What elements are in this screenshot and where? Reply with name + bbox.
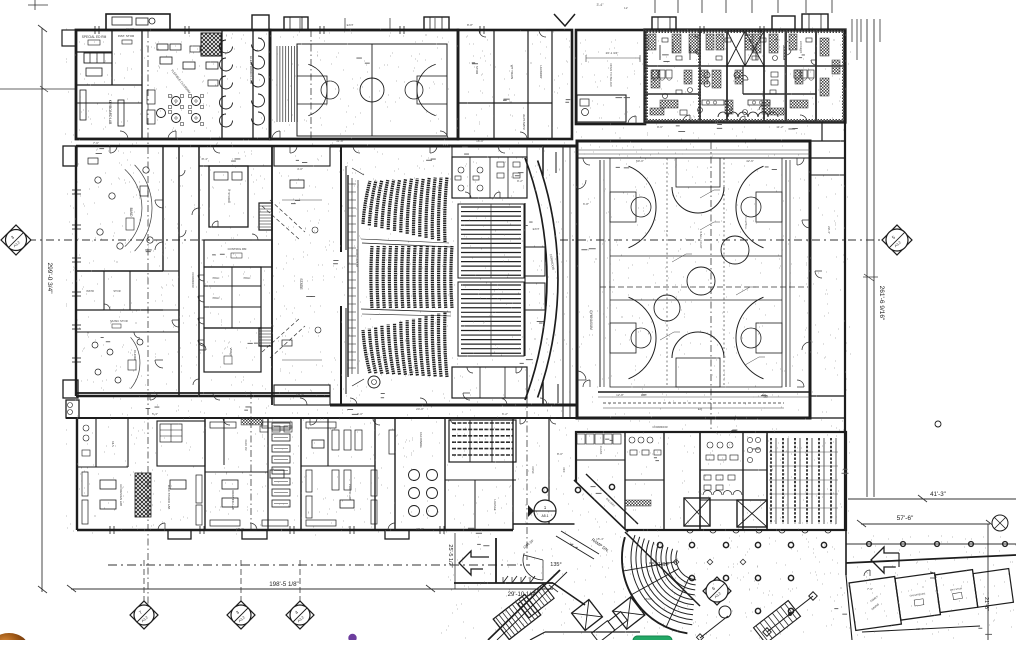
svg-text:9'-2": 9'-2" <box>517 179 523 183</box>
svg-text:16'-0": 16'-0" <box>476 139 484 143</box>
svg-text:11'-2": 11'-2" <box>776 125 783 129</box>
svg-text:12'-8": 12'-8" <box>616 393 624 397</box>
svg-text:25'-5 1/2": 25'-5 1/2" <box>447 544 453 567</box>
svg-text:299'-0 3/4": 299'-0 3/4" <box>46 262 53 294</box>
svg-text:29'-4": 29'-4" <box>827 226 831 234</box>
svg-text:LOUNGE: LOUNGE <box>493 500 497 511</box>
svg-text:7'-9": 7'-9" <box>867 587 873 591</box>
svg-text:8'-8": 8'-8" <box>467 23 473 27</box>
svg-text:8'-4": 8'-4" <box>202 157 208 161</box>
svg-text:OPEN TO BELOW: OPEN TO BELOW <box>609 63 613 87</box>
svg-text:CONF: CONF <box>531 466 535 474</box>
svg-text:ELECTRONICS LAB: ELECTRONICS LAB <box>249 56 253 84</box>
svg-text:12': 12' <box>624 6 628 10</box>
svg-text:261'-6 9/16": 261'-6 9/16" <box>878 286 885 321</box>
svg-text:OFF: OFF <box>562 467 566 473</box>
svg-text:41'-3": 41'-3" <box>930 491 946 498</box>
svg-text:7'-6": 7'-6" <box>93 141 99 145</box>
svg-text:6'-2": 6'-2" <box>502 412 508 416</box>
svg-text:STAGE: STAGE <box>299 278 303 290</box>
svg-text:BAND: BAND <box>129 208 133 218</box>
svg-text:VIDEO: VIDEO <box>229 348 233 358</box>
svg-text:VOLLEYBALL: VOLLEYBALL <box>744 215 747 230</box>
svg-text:EXIT: EXIT <box>533 227 540 231</box>
svg-text:LOCKERS: LOCKERS <box>671 41 675 54</box>
svg-text:EQ: EQ <box>698 407 703 411</box>
svg-text:18'-2": 18'-2" <box>236 527 244 531</box>
svg-text:ALPS MATV: ALPS MATV <box>522 114 526 130</box>
svg-text:A5.1: A5.1 <box>542 514 549 518</box>
svg-text:6'-10": 6'-10" <box>126 27 134 31</box>
svg-text:CONTROL RM: CONTROL RM <box>228 247 247 251</box>
svg-text:CHOIR: CHOIR <box>133 350 137 361</box>
svg-text:50'-0": 50'-0" <box>636 159 644 163</box>
svg-text:WT TRAIN: WT TRAIN <box>510 65 514 79</box>
svg-text:INST. STOR: INST. STOR <box>118 34 135 38</box>
svg-text:DARK RM: DARK RM <box>244 439 247 450</box>
svg-text:LOCKERS: LOCKERS <box>799 41 803 54</box>
svg-text:198'-5 1/8": 198'-5 1/8" <box>269 581 299 588</box>
svg-text:PRAC: PRAC <box>213 297 220 300</box>
svg-text:8'-0": 8'-0" <box>557 452 563 456</box>
svg-text:KILN: KILN <box>111 441 115 447</box>
svg-text:10'-2": 10'-2" <box>296 393 304 397</box>
svg-text:GYMNASIUM: GYMNASIUM <box>589 310 593 330</box>
svg-text:42'-6": 42'-6" <box>746 159 754 163</box>
svg-text:EQ: EQ <box>762 393 767 397</box>
svg-text:15'-4": 15'-4" <box>596 537 604 541</box>
svg-text:PRAC: PRAC <box>213 277 220 280</box>
svg-text:31'-8": 31'-8" <box>336 139 344 143</box>
svg-text:STOR: STOR <box>113 289 120 293</box>
svg-text:3-D DESIGN LAB: 3-D DESIGN LAB <box>119 484 123 506</box>
svg-text:6'-8": 6'-8" <box>583 202 589 206</box>
svg-text:PHOTO LAB: PHOTO LAB <box>348 484 352 500</box>
svg-text:3'-4": 3'-4" <box>597 3 605 7</box>
svg-text:5'-3": 5'-3" <box>152 412 158 416</box>
svg-text:CORRIDOR: CORRIDOR <box>191 272 195 287</box>
svg-text:135°: 135° <box>550 562 561 568</box>
svg-text:STAIR: STAIR <box>644 597 653 601</box>
svg-text:B-BALL COURT: B-BALL COURT <box>699 231 702 249</box>
svg-text:26'-1 3/4": 26'-1 3/4" <box>606 51 619 55</box>
svg-text:21'-8": 21'-8" <box>983 597 989 611</box>
svg-text:SPECIAL ED RM: SPECIAL ED RM <box>82 35 107 39</box>
svg-text:4'-0": 4'-0" <box>297 167 303 171</box>
svg-text:FAC DINING: FAC DINING <box>419 432 423 447</box>
svg-text:9'-6": 9'-6" <box>657 125 663 129</box>
svg-text:20'-0": 20'-0" <box>416 527 424 531</box>
svg-text:EXIT: EXIT <box>347 23 354 27</box>
svg-text:22'-4": 22'-4" <box>916 627 924 631</box>
svg-text:LAUNDRY: LAUNDRY <box>539 65 543 78</box>
svg-text:STOR: STOR <box>475 66 479 75</box>
svg-text:57'-6": 57'-6" <box>897 515 914 522</box>
svg-text:INSTR: INSTR <box>86 289 94 293</box>
svg-text:PRAC: PRAC <box>244 277 251 280</box>
svg-text:24'-0": 24'-0" <box>416 407 424 411</box>
svg-text:CLASS: CLASS <box>599 446 603 455</box>
svg-text:MUSIC STOR: MUSIC STOR <box>110 319 128 323</box>
